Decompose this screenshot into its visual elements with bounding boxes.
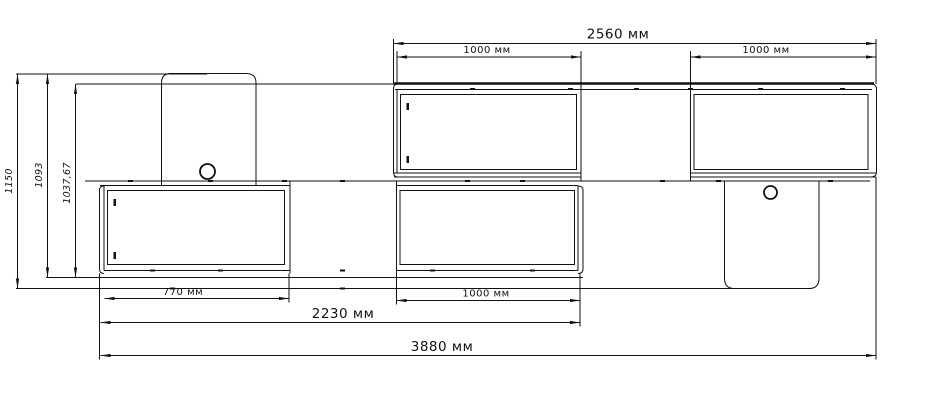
hinge-mark	[407, 103, 410, 110]
hinge-mark	[407, 156, 410, 163]
grommet-hole-left	[200, 164, 215, 179]
label-lower-span: 2230 мм	[312, 306, 375, 322]
label-upper-right-width: 1000 мм	[742, 45, 789, 56]
back-panel-left	[162, 74, 257, 186]
label-lower-middle-width: 1000 мм	[462, 289, 509, 300]
hinge-mark	[114, 252, 117, 259]
lower-cabinet-left	[100, 181, 291, 274]
label-lower-left-width: 770 мм	[163, 287, 203, 298]
support-panel-right	[725, 181, 820, 289]
joint-marks	[128, 88, 845, 290]
label-upper-band-height: 1037,67	[62, 162, 73, 203]
drawing-svg: 2560 мм 1000 мм 1000 мм 770 мм 1000 мм 2…	[0, 0, 942, 403]
hinge-mark	[114, 199, 117, 206]
extension-lines	[16, 39, 876, 360]
label-height-to-base: 1093	[34, 162, 45, 187]
label-upper-left-width: 1000 мм	[463, 45, 510, 56]
label-top-total: 2560 мм	[587, 27, 650, 43]
furniture-elevation-drawing: 2560 мм 1000 мм 1000 мм 770 мм 1000 мм 2…	[0, 0, 942, 403]
label-overall-width: 3880 мм	[411, 339, 474, 355]
grommet-hole-right	[764, 186, 777, 199]
label-overall-height: 1150	[4, 168, 15, 193]
upper-cabinet-right	[691, 84, 877, 181]
lower-cabinet-middle	[397, 181, 584, 274]
upper-cabinet-middle	[394, 84, 582, 181]
